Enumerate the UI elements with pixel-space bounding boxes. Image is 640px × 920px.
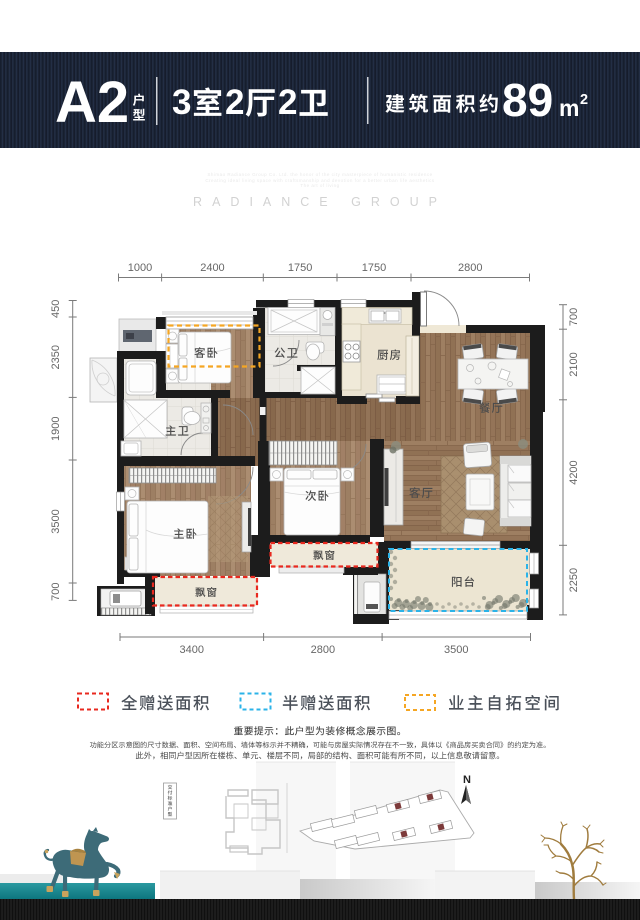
svg-text:m: m xyxy=(559,95,579,121)
svg-text:2350: 2350 xyxy=(50,345,62,369)
svg-text:2100: 2100 xyxy=(568,352,580,376)
svg-text:3: 3 xyxy=(172,83,191,122)
svg-text:3400: 3400 xyxy=(180,644,204,656)
svg-text:89: 89 xyxy=(502,74,553,126)
svg-text:RADIANCE GROUP: RADIANCE GROUP xyxy=(193,195,447,209)
svg-text:1750: 1750 xyxy=(288,262,312,274)
svg-text:4200: 4200 xyxy=(568,460,580,484)
svg-text:Shimao Radiance Group Co. Ltd.: Shimao Radiance Group Co. Ltd. the honor… xyxy=(207,172,432,177)
svg-text:2: 2 xyxy=(225,83,244,122)
svg-text:3500: 3500 xyxy=(444,644,468,656)
svg-text:2: 2 xyxy=(278,83,297,122)
svg-text:2: 2 xyxy=(580,92,588,108)
svg-text:2400: 2400 xyxy=(200,262,224,274)
svg-text:1900: 1900 xyxy=(50,416,62,440)
svg-text:A2: A2 xyxy=(55,70,129,135)
svg-text:2800: 2800 xyxy=(311,644,335,656)
svg-text:3500: 3500 xyxy=(50,509,62,533)
svg-text:N: N xyxy=(463,774,471,786)
svg-text:2250: 2250 xyxy=(568,568,580,592)
svg-text:The art of living: The art of living xyxy=(300,183,339,188)
svg-text:700: 700 xyxy=(50,583,62,601)
svg-text:1000: 1000 xyxy=(128,262,152,274)
svg-text:2800: 2800 xyxy=(458,262,482,274)
svg-text:700: 700 xyxy=(568,308,580,326)
svg-text:450: 450 xyxy=(50,300,62,318)
svg-text:1750: 1750 xyxy=(362,262,386,274)
